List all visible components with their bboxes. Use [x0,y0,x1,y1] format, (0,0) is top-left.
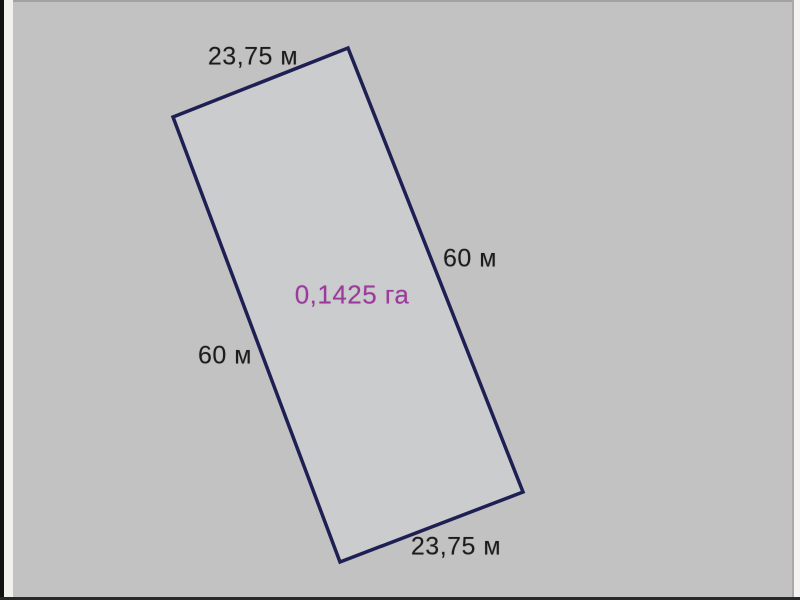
dimension-label-bottom: 23,75 м [411,533,501,562]
dimension-label-top: 23,75 м [208,43,298,72]
dimension-label-left: 60 м [198,342,252,371]
dimension-label-right: 60 м [443,245,497,274]
area-label: 0,1425 га [295,280,410,311]
land-plot-diagram: 23,75 м 60 м 0,1425 га 60 м 23,75 м [0,0,800,600]
